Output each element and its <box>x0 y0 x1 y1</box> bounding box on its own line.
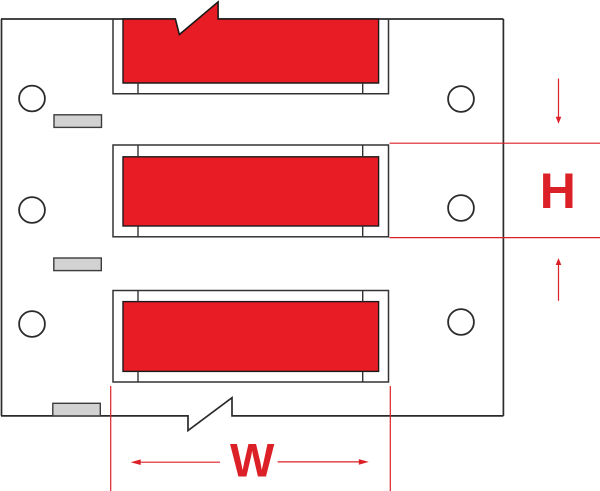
svg-text:H: H <box>540 163 576 219</box>
svg-text:W: W <box>230 434 275 487</box>
